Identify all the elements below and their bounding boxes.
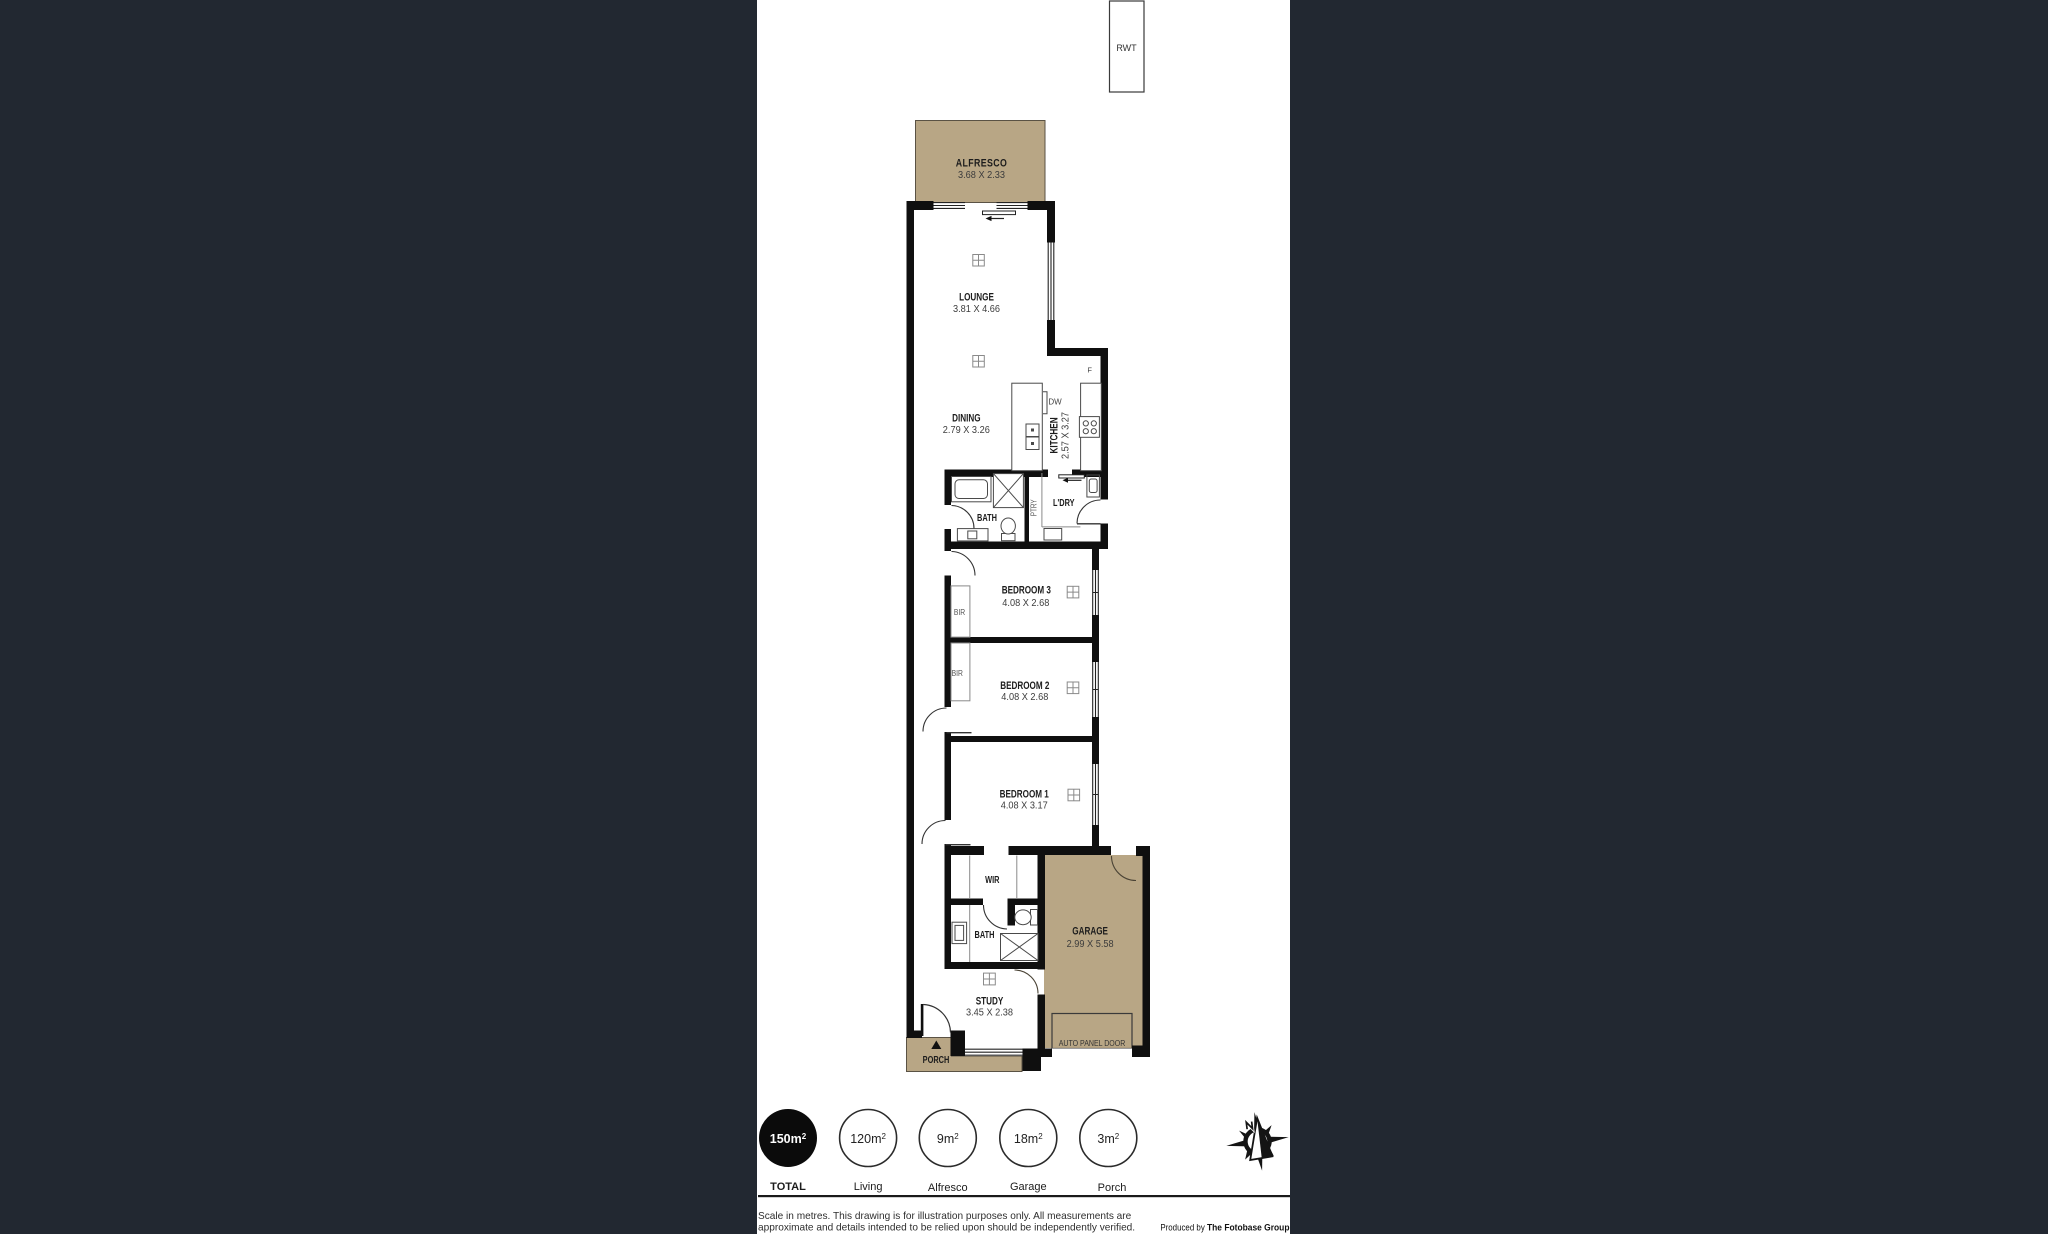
- svg-text:BEDROOM 3: BEDROOM 3: [1002, 585, 1052, 598]
- svg-text:150m2: 150m2: [770, 1132, 807, 1146]
- svg-text:F: F: [1087, 366, 1092, 375]
- svg-text:2.57 X 3.27: 2.57 X 3.27: [1060, 412, 1071, 459]
- svg-text:DINING: DINING: [952, 412, 980, 425]
- svg-text:DW: DW: [1048, 397, 1062, 406]
- svg-text:approximate and details intend: approximate and details intended to be r…: [758, 1223, 1135, 1234]
- svg-text:GARAGE: GARAGE: [1072, 925, 1108, 938]
- svg-text:4.08 X 3.17: 4.08 X 3.17: [1001, 800, 1048, 811]
- svg-text:STUDY: STUDY: [976, 995, 1004, 1008]
- svg-text:LOUNGE: LOUNGE: [959, 291, 994, 304]
- svg-text:BEDROOM 2: BEDROOM 2: [1000, 680, 1049, 693]
- svg-text:BATH: BATH: [975, 929, 995, 940]
- svg-text:Produced by The Fotobase Group: Produced by The Fotobase Group: [1160, 1222, 1290, 1233]
- svg-text:Living: Living: [854, 1181, 883, 1193]
- svg-text:120m2: 120m2: [850, 1132, 886, 1146]
- svg-text:AUTO PANEL DOOR: AUTO PANEL DOOR: [1059, 1039, 1126, 1049]
- svg-text:KITCHEN: KITCHEN: [1048, 417, 1061, 453]
- svg-text:BIR: BIR: [952, 668, 964, 678]
- svg-text:ALFRESCO: ALFRESCO: [956, 158, 1008, 170]
- svg-text:2.99 X 5.58: 2.99 X 5.58: [1067, 939, 1114, 950]
- svg-text:L'DRY: L'DRY: [1053, 497, 1075, 508]
- svg-text:3.68 X 2.33: 3.68 X 2.33: [958, 170, 1005, 181]
- svg-text:Porch: Porch: [1098, 1182, 1127, 1194]
- svg-text:4.08 X 2.68: 4.08 X 2.68: [1002, 598, 1049, 609]
- svg-text:TOTAL: TOTAL: [770, 1181, 806, 1193]
- svg-text:Garage: Garage: [1010, 1181, 1047, 1193]
- svg-text:PORCH: PORCH: [923, 1054, 950, 1065]
- svg-text:Scale in metres. This drawing: Scale in metres. This drawing is for ill…: [758, 1211, 1132, 1222]
- svg-text:BIR: BIR: [954, 607, 966, 617]
- svg-text:2.79 X 3.26: 2.79 X 3.26: [943, 424, 990, 435]
- svg-text:3.81 X 4.66: 3.81 X 4.66: [953, 304, 1000, 315]
- svg-text:Alfresco: Alfresco: [928, 1182, 968, 1194]
- svg-text:WIR: WIR: [985, 874, 1000, 885]
- svg-text:PTRY: PTRY: [1029, 499, 1039, 516]
- svg-text:BEDROOM 1: BEDROOM 1: [1000, 788, 1050, 801]
- svg-text:4.08 X 2.68: 4.08 X 2.68: [1001, 692, 1048, 703]
- svg-text:RWT: RWT: [1116, 43, 1137, 53]
- svg-text:BATH: BATH: [977, 512, 997, 523]
- svg-text:3.45 X 2.38: 3.45 X 2.38: [966, 1007, 1013, 1018]
